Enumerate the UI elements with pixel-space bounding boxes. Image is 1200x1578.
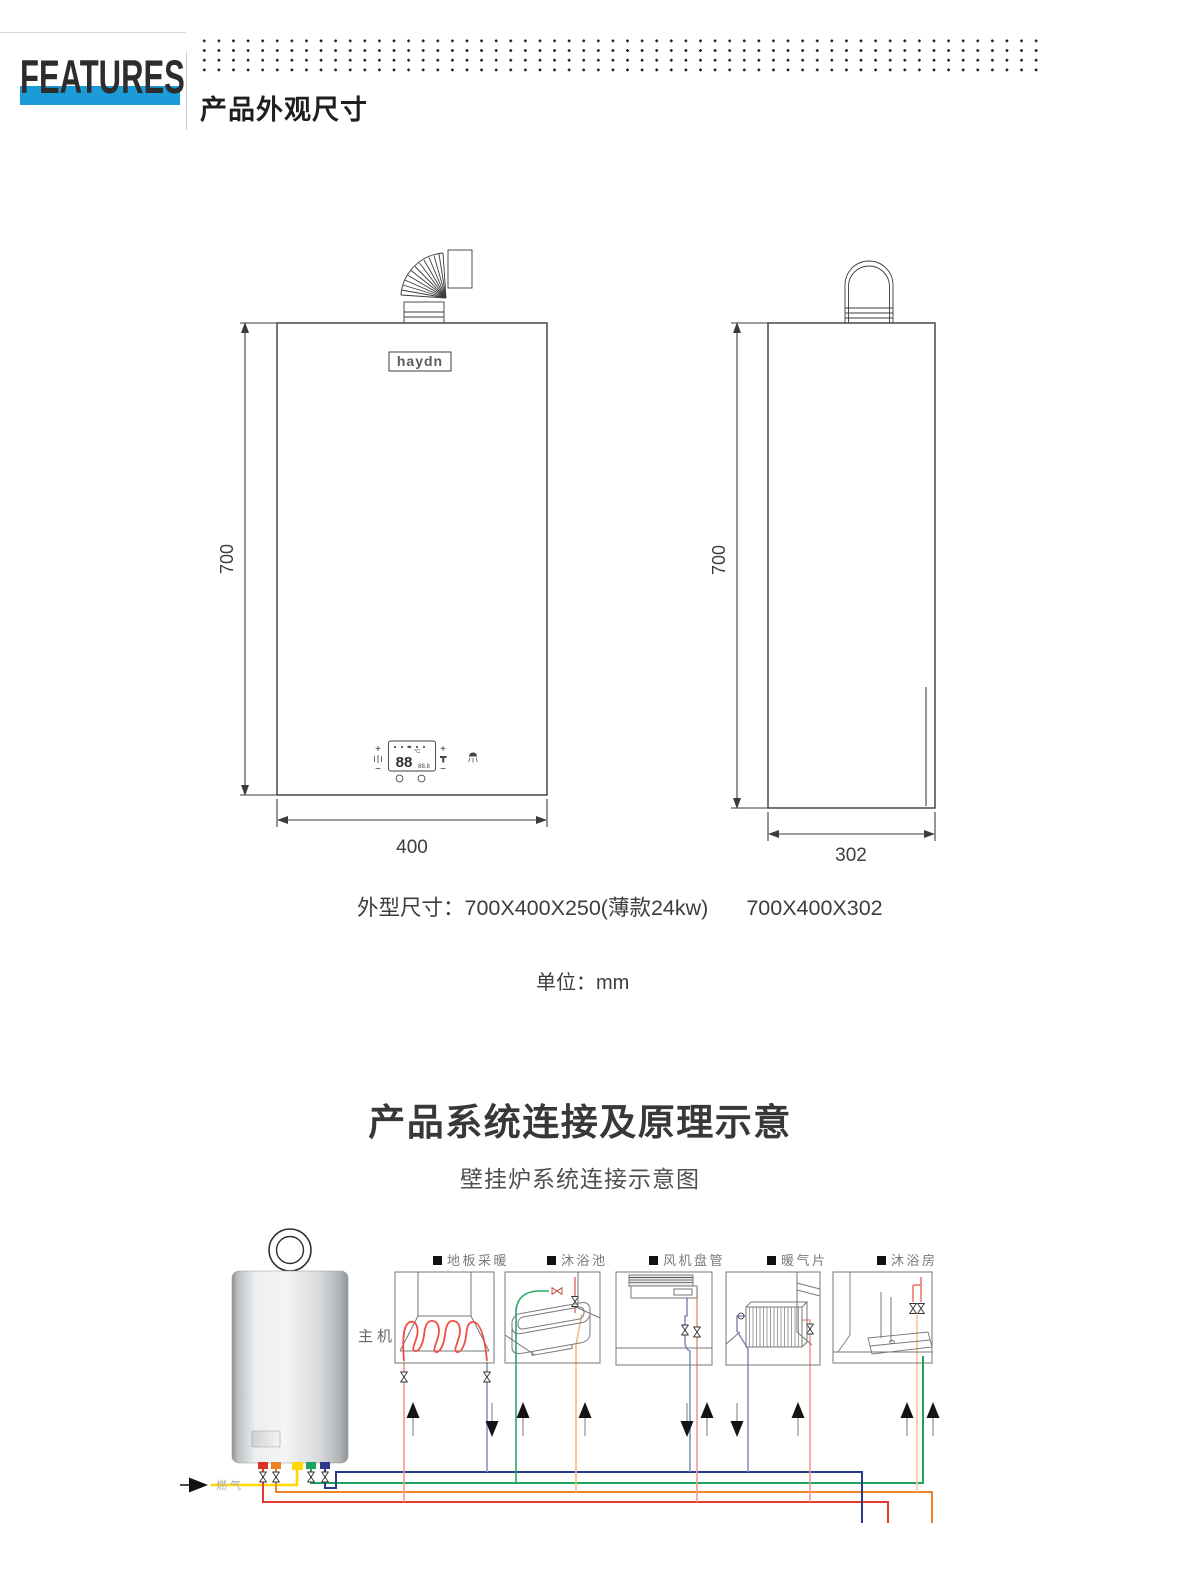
bullet-square-icon xyxy=(547,1256,556,1265)
dhw-plus-label: + xyxy=(440,744,446,755)
svg-text:400: 400 xyxy=(396,837,428,858)
system-section-header: 产品系统连接及原理示意 壁挂炉系统连接示意图 xyxy=(0,1092,1160,1194)
glass-partition xyxy=(881,1292,891,1342)
shower-tray-icon xyxy=(868,1332,932,1354)
side-height-dimension: 700 xyxy=(709,322,768,809)
floor-heating-box xyxy=(395,1272,494,1363)
svg-text:302: 302 xyxy=(835,845,867,866)
heating-plus-label: + xyxy=(375,744,381,755)
hot-water-pipe xyxy=(276,1469,932,1523)
side-body-outline xyxy=(768,323,935,808)
bullet-square-icon xyxy=(767,1256,776,1265)
system-title: 产品系统连接及原理示意 xyxy=(0,1092,1160,1146)
brand-wordmark: FEATURES xyxy=(20,53,185,100)
flue-pipe-icon xyxy=(845,261,893,323)
system-subtitle: 壁挂炉系统连接示意图 xyxy=(0,1160,1160,1194)
side-depth-dimension: 302 xyxy=(768,812,935,866)
gas-label: 燃气 xyxy=(216,1478,244,1492)
size-slim-value: 700X400X250(薄款24kw) xyxy=(465,896,709,920)
svg-text:700: 700 xyxy=(217,544,237,574)
panel-button-right xyxy=(418,775,425,782)
shower-icon xyxy=(469,753,478,763)
appliance-label: 沐浴池 xyxy=(561,1253,608,1268)
dot-pattern-decoration xyxy=(197,36,1046,75)
front-view-drawing: haydn 88 °C 88.8 + − xyxy=(217,250,547,858)
brand-logo: haydn xyxy=(397,353,443,369)
appliance-label: 沐浴房 xyxy=(891,1253,938,1268)
bullet-square-icon xyxy=(877,1256,886,1265)
panel-button-left xyxy=(396,775,403,782)
appliance-label: 暖气片 xyxy=(781,1253,828,1268)
boiler-unit: 主机 xyxy=(232,1229,396,1470)
front-width-dimension: 400 xyxy=(277,799,547,858)
unit-note: 单位：mm xyxy=(536,966,629,995)
fan-coil-unit-icon xyxy=(629,1275,697,1298)
heating-return-pipe xyxy=(325,1469,862,1523)
temp-digits: 88 xyxy=(396,754,413,771)
appliance-label: 地板采暖 xyxy=(447,1253,509,1268)
product-feature-page: FEATURES 产品外观尺寸 xyxy=(0,0,1200,1578)
front-height-dimension: 700 xyxy=(217,322,277,796)
side-view-drawing: 700 302 xyxy=(709,261,935,866)
bullet-square-icon xyxy=(649,1256,658,1265)
size-label: 外型尺寸： xyxy=(357,896,465,920)
temp-unit: °C xyxy=(414,749,420,755)
system-connection-diagram: 主机 xyxy=(0,1222,1200,1578)
gas-arrow-icon xyxy=(189,1478,208,1493)
size-standard-value: 700X400X302 xyxy=(746,896,882,920)
appliance-label: 风机盘管 xyxy=(663,1253,725,1268)
flue-elbow-icon xyxy=(401,250,472,323)
valves xyxy=(260,1288,925,1482)
outline-size-note: 外型尺寸：700X400X250(薄款24kw)700X400X302 xyxy=(357,891,883,922)
section-title: 产品外观尺寸 xyxy=(200,88,368,127)
tap-icon xyxy=(440,756,447,763)
status-icons-row xyxy=(394,746,425,748)
front-body-outline xyxy=(277,323,547,795)
bullet-square-icon xyxy=(433,1256,442,1265)
header-divider-line xyxy=(0,32,186,33)
flue-ring-icon xyxy=(269,1229,311,1271)
sub-digits: 88.8 xyxy=(418,764,430,770)
appliance-boxes: 地板采暖 沐浴池 风机盘管 暖气片 沐浴房 xyxy=(395,1253,938,1365)
header-vertical-divider xyxy=(186,52,187,130)
boiler-label: 主机 xyxy=(358,1328,396,1345)
bathtub-box xyxy=(505,1272,600,1363)
control-panel: 88 °C 88.8 + − + − xyxy=(375,741,478,782)
heating-coil xyxy=(403,1321,487,1361)
dimension-drawings: haydn 88 °C 88.8 + − xyxy=(0,228,1200,878)
appliance-labels: 地板采暖 沐浴池 风机盘管 暖气片 沐浴房 xyxy=(433,1253,938,1268)
boiler-body xyxy=(232,1271,348,1463)
svg-text:700: 700 xyxy=(709,545,729,575)
heating-minus-label: − xyxy=(375,764,381,775)
boiler-display xyxy=(252,1431,280,1447)
heating-icon xyxy=(375,755,382,763)
radiator-box xyxy=(726,1272,820,1365)
dhw-minus-label: − xyxy=(440,764,446,775)
radiator-icon xyxy=(746,1302,807,1347)
